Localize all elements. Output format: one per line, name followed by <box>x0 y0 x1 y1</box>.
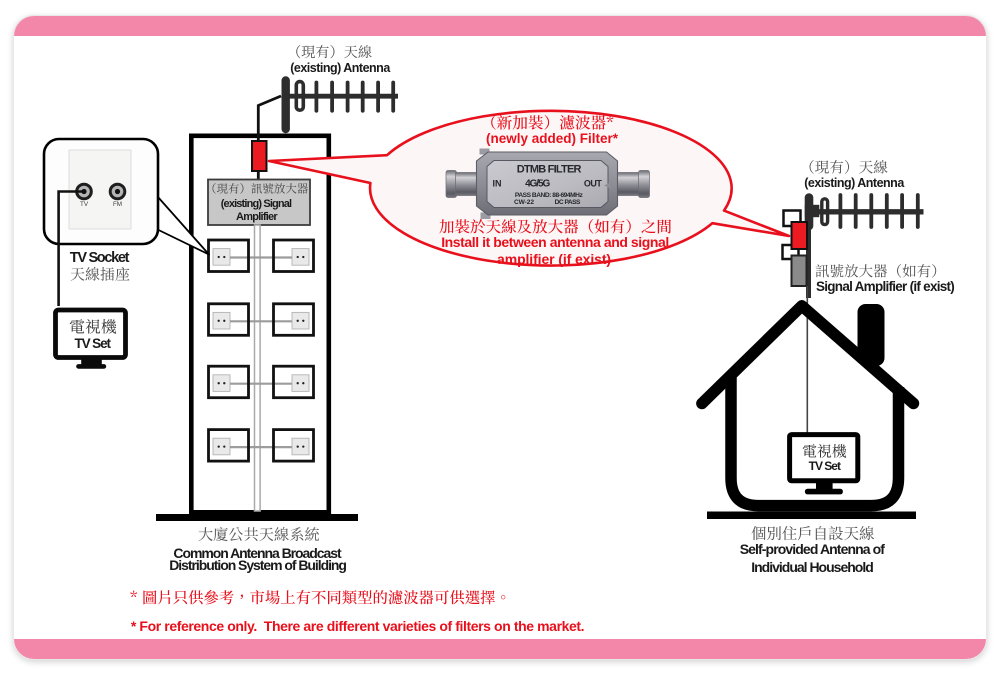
svg-text:TV: TV <box>80 201 89 208</box>
svg-text:DC PASS: DC PASS <box>555 199 581 206</box>
svg-text:OUT: OUT <box>584 179 603 189</box>
svg-text:4G/5G: 4G/5G <box>525 179 550 190</box>
svg-text:IN: IN <box>493 179 502 189</box>
svg-text:DTMB FILTER: DTMB FILTER <box>517 164 582 176</box>
svg-text:CW-22: CW-22 <box>514 199 534 206</box>
